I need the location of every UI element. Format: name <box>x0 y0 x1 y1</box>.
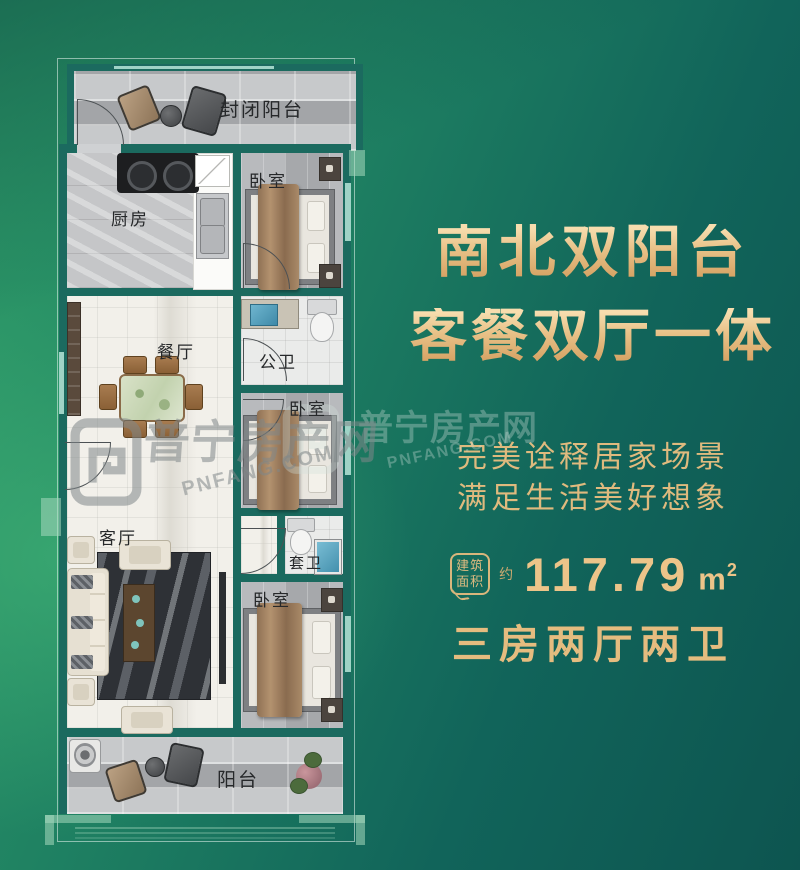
chair-icon <box>155 420 179 438</box>
headline-line2: 客餐双厅一体 <box>392 308 794 365</box>
room-label-kitchen: 厨房 <box>111 205 149 230</box>
bed-icon <box>243 608 341 712</box>
area-value: 117.79 <box>524 551 689 598</box>
exterior-mark <box>349 150 365 176</box>
room-dining-living: 餐厅 客厅 <box>67 296 233 728</box>
wall <box>233 153 241 288</box>
exterior-line <box>75 827 335 829</box>
window-marker <box>59 352 64 414</box>
exterior-bracket <box>45 815 54 845</box>
room-label-bedroom-bottom: 卧室 <box>253 586 291 611</box>
area-row: 建筑 面积 约 117.79 m2 <box>392 548 794 600</box>
nightstand-icon <box>319 264 341 288</box>
window-marker <box>345 421 351 475</box>
wall-left <box>59 144 67 737</box>
room-bedroom-bottom: 卧室 <box>241 582 343 728</box>
room-kitchen: 厨房 <box>67 153 233 288</box>
wall <box>59 728 67 814</box>
toilet-icon <box>287 518 313 554</box>
area-unit-sup: 2 <box>727 560 737 580</box>
sideboard-icon <box>67 302 81 416</box>
area-unit: m2 <box>698 563 736 594</box>
chair-icon <box>123 420 147 438</box>
door-opening <box>77 144 121 153</box>
balcony-table-icon <box>145 757 165 777</box>
area-badge-line1: 建筑 <box>456 558 484 574</box>
wall-bottom <box>59 728 351 737</box>
poster-background: 封闭阳台 厨房 卧室 <box>0 0 800 870</box>
sofa-icon <box>67 568 109 676</box>
nightstand-icon <box>319 157 341 181</box>
nightstand-icon <box>321 698 343 722</box>
stove-icon <box>117 153 199 193</box>
cutting-board-icon <box>195 155 230 187</box>
tv-icon <box>219 572 226 684</box>
floorplan: 封闭阳台 厨房 卧室 <box>45 52 377 847</box>
layout-spec: 三房两厅两卫 <box>392 612 794 670</box>
balcony-chair-icon <box>163 742 205 788</box>
area-unit-base: m <box>698 562 726 597</box>
vanity-sink-icon <box>241 299 299 329</box>
wall <box>241 574 351 582</box>
exterior-bracket <box>45 815 111 823</box>
balcony-table-icon <box>160 105 182 127</box>
room-label-enclosed-balcony: 封闭阳台 <box>220 95 304 122</box>
side-table-icon <box>67 536 95 564</box>
nightstand-icon <box>321 588 343 612</box>
balcony-chair-icon <box>104 759 147 804</box>
coffee-table-icon <box>123 584 155 662</box>
room-label-bedroom-top: 卧室 <box>249 167 287 192</box>
room-label-bedroom-mid: 卧室 <box>289 395 327 420</box>
headline-line1: 南北双阳台 <box>392 224 794 281</box>
wall <box>343 728 351 814</box>
area-badge: 建筑 面积 <box>450 553 490 595</box>
side-table-icon <box>67 678 95 706</box>
exterior-bracket <box>356 815 365 845</box>
plant-icon <box>289 753 331 797</box>
dining-table-icon <box>119 374 185 422</box>
kitchen-sink-icon <box>196 193 229 259</box>
exterior-line <box>75 832 335 834</box>
exterior-line <box>75 837 335 839</box>
room-label-living: 客厅 <box>99 524 137 549</box>
room-label-bath-ensuite: 套卫 <box>289 552 323 573</box>
room-bath-ensuite: 套卫 <box>285 516 343 574</box>
wall <box>241 385 351 393</box>
room-label-bath-public: 公卫 <box>259 348 297 373</box>
wall <box>233 296 241 728</box>
chair-icon <box>185 384 203 410</box>
window-marker <box>114 66 274 69</box>
room-bedroom-mid: 卧室 <box>241 393 343 508</box>
subtitle-line1: 完美诠释居家场景 <box>392 432 794 476</box>
marketing-panel: 南北双阳台 客餐双厅一体 完美诠释居家场景 满足生活美好想象 建筑 面积 约 1… <box>392 0 794 870</box>
subtitle-line2: 满足生活美好想象 <box>392 473 794 517</box>
badge-tail <box>451 588 470 600</box>
window-marker <box>345 616 351 672</box>
window-marker <box>345 183 351 241</box>
exterior-mark <box>41 498 61 536</box>
room-label-balcony: 阳台 <box>217 765 259 792</box>
washing-machine-icon <box>69 739 101 773</box>
room-bath-public: 公卫 <box>241 296 343 385</box>
area-approx-label: 约 <box>499 564 513 584</box>
balcony-chair-icon <box>116 84 162 132</box>
room-label-dining: 餐厅 <box>157 338 195 363</box>
chair-icon <box>99 384 117 410</box>
chair-icon <box>123 356 147 374</box>
armchair-icon <box>121 706 173 734</box>
room-balcony: 阳台 <box>67 737 343 814</box>
toilet-icon <box>307 299 335 341</box>
